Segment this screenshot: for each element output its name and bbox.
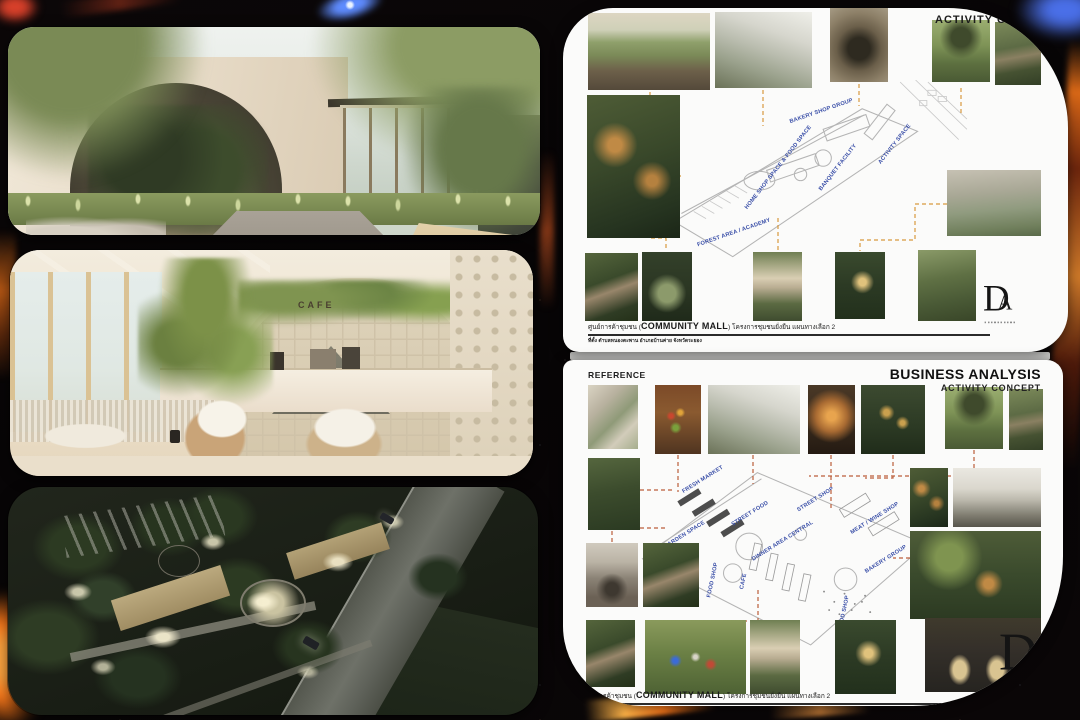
plan-label: FOOD SHOP	[706, 562, 719, 598]
boulders	[26, 211, 166, 235]
logo-letter-a: A	[997, 293, 1012, 314]
photo-street-with-shade-sails	[708, 385, 800, 454]
glow-warm-top	[59, 0, 180, 18]
photo-garden-terrace	[910, 531, 1041, 619]
render-aerial-night-site	[8, 487, 538, 715]
photo-fruit-market-stall	[655, 385, 701, 454]
footer-rule	[588, 334, 990, 336]
photo-greenhouse-restaurant	[587, 95, 680, 238]
glow-red-top-left	[0, 0, 40, 24]
photo-lawn-picnic-crowd	[645, 620, 746, 694]
project-title: COMMUNITY MALL	[641, 321, 728, 331]
plan-label: STREET SHOP	[796, 486, 835, 513]
plan-label: ACTIVITY SPACE	[877, 123, 912, 165]
plan-label: FRESH MARKET	[681, 465, 724, 495]
photo-greenhouse-interior	[910, 468, 948, 527]
photo-house-garden	[753, 252, 802, 321]
streak-orange-gap	[540, 150, 554, 350]
coffee-cup	[170, 430, 180, 443]
plan-label: BAKERY GROUP	[864, 544, 908, 575]
spark-blue-top	[345, 0, 355, 10]
thai-suffix: ) โครงการชุมชนยั่งยืน แผนทางเลือก 2	[728, 324, 835, 331]
photo-white-cafe-exterior	[953, 468, 1041, 527]
photo-garden-cottage	[995, 22, 1041, 85]
logo-caption-rule	[1001, 686, 1045, 688]
willow-tree-left	[8, 27, 208, 182]
board-title-business-analysis: BUSINESS ANALYSIS	[890, 366, 1041, 382]
thai-suffix: ) โครงการชุมชนยั่งยืน แผนทางเลือก 2	[723, 693, 830, 700]
site-plan-isometric-top: BAKERY SHOP GROUP ACTIVITY SPACE BANQUET…	[668, 80, 968, 270]
thai-prefix: ศูนย์การค้าชุมชน (	[583, 693, 636, 700]
appliance	[342, 347, 360, 369]
round-table	[38, 422, 133, 450]
project-title-line: ศูนย์การค้าชุมชน (COMMUNITY MALL) โครงกา…	[583, 690, 1053, 701]
photo-orchard-table	[945, 387, 1003, 449]
poster-collage: CAFE	[0, 0, 1080, 720]
board-title-activity-concept: ACTIVITY CONCEPT	[935, 14, 1058, 26]
board-subtitle-activity-concept: ACTIVITY CONCEPT	[941, 383, 1041, 393]
photo-garden-lounge	[642, 252, 692, 321]
photo-terraced-seating	[715, 12, 812, 88]
project-footer: ศูนย์การค้าชุมชน (COMMUNITY MALL) โครงกา…	[583, 690, 1053, 706]
coffee-machine	[310, 349, 336, 369]
glass-block-wall	[450, 250, 533, 476]
thai-prefix: ศูนย์การค้าชุมชน (	[588, 324, 641, 331]
board-activity-concept: BAKERY SHOP GROUP ACTIVITY SPACE BANQUET…	[563, 8, 1068, 352]
glow-blue-top	[312, 0, 387, 29]
plan-label: DINNER AREA CENTRAL	[751, 520, 815, 563]
photo-garden-pavilion	[585, 253, 638, 321]
photo-coworking-interior	[588, 13, 710, 90]
photo-house-garden	[750, 620, 800, 694]
floor	[10, 456, 533, 476]
photo-outdoor-dining-aerial	[861, 385, 925, 454]
logo-letter-a: A	[1020, 644, 1042, 674]
photo-night-alley-shops	[808, 385, 855, 454]
plan-label: HOME SHOP SPACE & FOOD SPACE	[744, 125, 813, 211]
cushion-right	[310, 406, 380, 450]
render-exterior-arch-building	[8, 27, 540, 235]
plan-label: FOREST AREA / ACADEMY	[697, 217, 772, 248]
photo-masterplan-collage	[588, 385, 638, 449]
light-pools	[8, 487, 538, 715]
photo-conservatory-garden	[918, 250, 976, 321]
reference-label: REFERENCE	[588, 370, 646, 380]
project-location-line: ที่ตั้ง ตำบลหนองตะพาน อำเภอบ้านค่าย จังห…	[588, 337, 1058, 345]
photo-stone-grotto	[830, 8, 888, 82]
logo-caption-rule	[985, 322, 1015, 324]
fiddle-leaf-plant	[138, 258, 273, 413]
cushion-left	[194, 398, 250, 440]
photo-shopfront	[586, 543, 638, 607]
da-studio-logo: D A	[983, 280, 1020, 331]
render-cafe-interior: CAFE	[10, 250, 533, 476]
photo-hedge-window	[643, 543, 699, 607]
project-title: COMMUNITY MALL	[636, 690, 723, 700]
plan-label: BAKERY SHOP GROUP	[789, 98, 854, 125]
footer-rule	[583, 703, 1023, 705]
photo-hedge-garden	[588, 458, 640, 530]
photo-orchard-table	[932, 20, 990, 82]
plan-label: CAFE	[739, 573, 748, 590]
da-studio-logo: D A	[999, 626, 1052, 700]
photo-evening-garden	[835, 252, 885, 319]
cafe-sign: CAFE	[298, 300, 335, 310]
photo-evening-garden	[835, 620, 896, 694]
photo-garden-cottage	[1009, 389, 1043, 450]
plan-label: STREET FOOD	[731, 500, 770, 527]
photo-garden-pavilion	[586, 620, 635, 687]
board-business-analysis: FRESH MARKET STREET FOOD STREET SHOP MEA…	[563, 360, 1063, 706]
slide-divider	[570, 352, 1050, 360]
photo-village-amphitheater	[947, 170, 1041, 236]
